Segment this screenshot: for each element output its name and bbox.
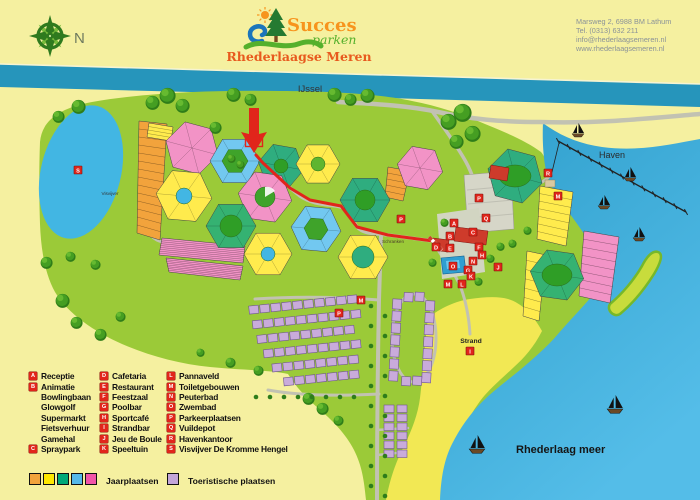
email-line: info@rhederlaagsemeren.nl bbox=[576, 35, 667, 44]
marker-E: E bbox=[446, 244, 454, 252]
svg-text:N: N bbox=[471, 259, 475, 265]
marker-S: S bbox=[74, 166, 82, 174]
svg-text:L: L bbox=[460, 282, 464, 288]
phone-line: Tel. (0313) 632 211 bbox=[576, 26, 638, 35]
svg-text:M: M bbox=[359, 298, 364, 304]
beach-label: Strand bbox=[460, 338, 482, 345]
marker-M: M bbox=[357, 296, 365, 304]
svg-text:M: M bbox=[556, 194, 561, 200]
svg-text:S: S bbox=[76, 168, 80, 174]
svg-text:O: O bbox=[451, 264, 456, 270]
svg-text:P: P bbox=[337, 311, 341, 317]
marker-O: O bbox=[449, 262, 457, 270]
lake-label: Rhederlaag meer bbox=[516, 444, 606, 456]
svg-text:E: E bbox=[448, 246, 452, 252]
marker-P: P bbox=[475, 194, 483, 202]
svg-text:K: K bbox=[469, 274, 473, 280]
marker-H: H bbox=[478, 251, 486, 259]
harbor-label: Haven bbox=[599, 150, 625, 160]
barrier-label: Schranken bbox=[382, 239, 404, 244]
svg-text:P: P bbox=[477, 196, 481, 202]
svg-text:C: C bbox=[471, 230, 475, 236]
svg-text:F: F bbox=[477, 245, 481, 251]
park-name: Rhederlaagse Meren bbox=[226, 49, 371, 64]
svg-text:R: R bbox=[546, 171, 550, 177]
marker-Q: Q bbox=[482, 214, 490, 222]
pond-label: Visvijver bbox=[101, 191, 118, 196]
marker-B: B bbox=[446, 232, 454, 240]
svg-text:A: A bbox=[452, 221, 456, 227]
svg-text:D: D bbox=[434, 245, 438, 251]
svg-text:M: M bbox=[446, 282, 451, 288]
marker-C: C bbox=[469, 228, 477, 236]
harbor-office-building bbox=[545, 180, 555, 187]
marker-N: N bbox=[469, 257, 477, 265]
marker-P: P bbox=[335, 309, 343, 317]
marker-L: L bbox=[458, 280, 466, 288]
address-block: Marsweg 2, 6988 BM Lathum Tel. (0313) 63… bbox=[575, 17, 671, 53]
svg-text:Q: Q bbox=[484, 216, 489, 222]
marker-K: K bbox=[467, 272, 475, 280]
svg-text:B: B bbox=[448, 234, 452, 240]
marker-M: M bbox=[444, 280, 452, 288]
svg-text:J: J bbox=[496, 265, 499, 271]
marker-I: I bbox=[466, 347, 474, 355]
svg-text:P: P bbox=[399, 217, 403, 223]
marker-R: R bbox=[544, 169, 552, 177]
svg-text:H: H bbox=[480, 253, 484, 259]
park-map-page: S P P P Q A O D B E N F G H C J K L M M … bbox=[0, 0, 700, 500]
compass-north-label: N bbox=[74, 30, 85, 47]
marker-A: A bbox=[450, 219, 458, 227]
marker-D: D bbox=[432, 243, 440, 251]
address-line: Marsweg 2, 6988 BM Lathum bbox=[576, 17, 671, 26]
marker-P: P bbox=[397, 215, 405, 223]
river-label: IJssel bbox=[298, 84, 322, 95]
marker-F: F bbox=[475, 243, 483, 251]
logo-brand-sub: parken bbox=[312, 32, 356, 47]
park-map: S P P P Q A O D B E N F G H C J K L M M … bbox=[0, 0, 700, 500]
website-line: www.rhederlaagsemeren.nl bbox=[575, 44, 665, 53]
sports-hall bbox=[489, 165, 509, 181]
marker-J: J bbox=[494, 263, 502, 271]
marker-M: M bbox=[554, 192, 562, 200]
